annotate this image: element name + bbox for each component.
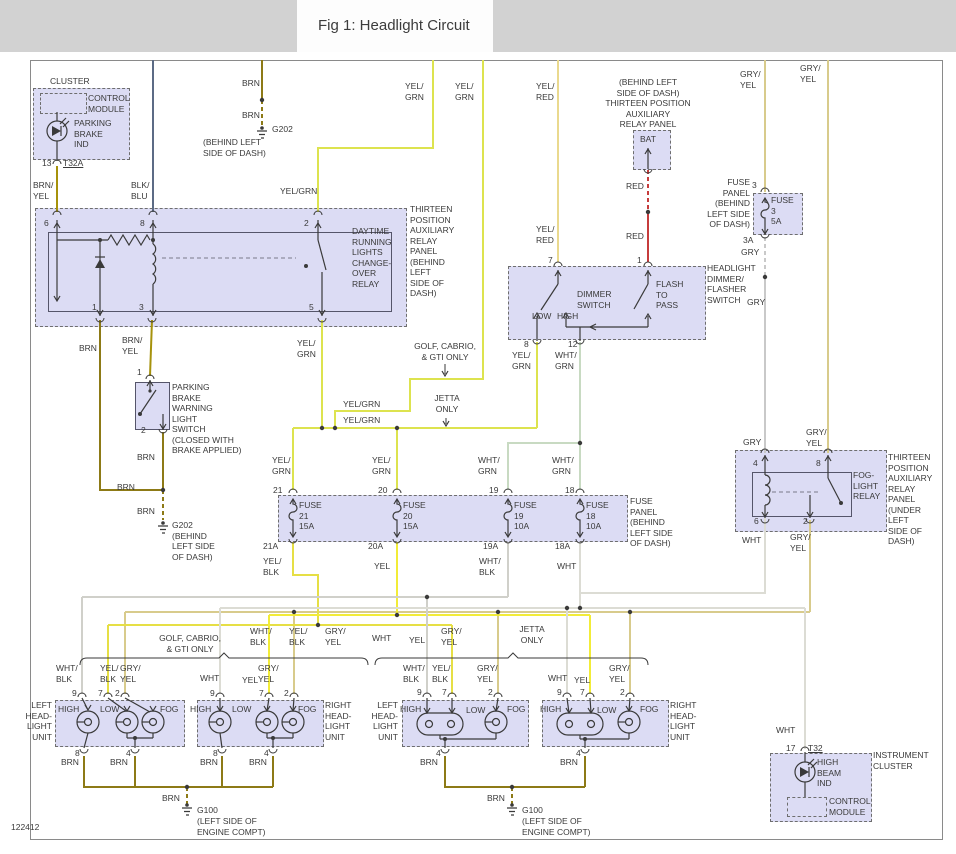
jetta-right-unit-label: RIGHT HEAD- LIGHT UNIT [670, 700, 696, 742]
dimmer-pin-7: 7 [548, 255, 553, 266]
jr-pin-9: 9 [557, 687, 562, 698]
wire-gry-yel-fog8: GRY/ YEL [806, 427, 827, 448]
drl-relay-label: DAYTIME RUNNING LIGHTS CHANGE- OVER RELA… [352, 226, 392, 289]
jetta-right-low: LOW [597, 705, 616, 716]
wire-yel-grn-pin5: YEL/ GRN [297, 338, 316, 359]
wire-wht-row: WHT [372, 633, 391, 644]
jr-pin-2: 2 [620, 687, 625, 698]
ground-g202-bottom: G202 (BEHIND LEFT SIDE OF DASH) [172, 520, 215, 562]
wire-yel-grn-f20: YEL/ GRN [372, 455, 391, 476]
instrument-cluster-internals [795, 752, 817, 797]
wire-brn-drl1: BRN [79, 343, 97, 354]
wire-wht-grn-f18: WHT/ GRN [552, 455, 574, 476]
fuse3-element [761, 198, 769, 234]
wire-yel-gr7: YEL [242, 675, 258, 686]
ground-g100-right: G100 [522, 805, 543, 816]
wire-yel-grn-f21: YEL/ GRN [272, 455, 291, 476]
wire-brn-gl4: BRN [110, 757, 128, 768]
wire-wht-18a: WHT [557, 561, 576, 572]
variant-jetta-note: JETTA ONLY [428, 393, 466, 414]
pin-21a: 21A [263, 541, 278, 552]
dimmer-pin-12: 12 [568, 339, 577, 350]
wire-brn-gr8: BRN [200, 757, 218, 768]
wire-yel-grn-dimmer: YEL/ GRN [512, 350, 531, 371]
jr-pin-7: 7 [580, 687, 585, 698]
golf-right-low: LOW [232, 704, 251, 715]
wire-brn-yel-drl3: BRN/ YEL [122, 335, 142, 356]
pin-19: 19 [489, 485, 498, 496]
ic-pin-17: 17 [786, 743, 795, 754]
brn-wires [84, 60, 585, 804]
wire-yel-blk-21a: YEL/ BLK [263, 556, 281, 577]
wire-brn-pbs: BRN [137, 452, 155, 463]
jetta-right-high: HIGH [540, 704, 561, 715]
wire-red-2: RED [626, 231, 644, 242]
wire-wht-fog6: WHT [742, 535, 761, 546]
terminal-t32a: T32A [63, 158, 83, 169]
bat-panel-label: (BEHIND LEFT SIDE OF DASH) THIRTEEN POSI… [588, 77, 708, 130]
variant-jetta-brace-label: JETTA ONLY [510, 624, 554, 645]
wire-gry-2: GRY [747, 297, 765, 308]
fog-relay-label: FOG- LIGHT RELAY [853, 470, 880, 502]
drl-pin-3: 3 [139, 302, 144, 313]
gr-pin-2: 2 [284, 688, 289, 699]
cluster-title: CLUSTER [50, 76, 90, 87]
jl-pin-2: 2 [488, 687, 493, 698]
terminal-t32: T32 [808, 743, 823, 754]
pbs-pin-1: 1 [137, 367, 142, 378]
fuse-21-label: FUSE 21 15A [299, 500, 322, 532]
wire-blk-blu: BLK/ BLU [131, 180, 149, 201]
pbs-pin-2: 2 [141, 425, 146, 436]
pin-18: 18 [565, 485, 574, 496]
fog-panel-label: THIRTEEN POSITION AUXILIARY RELAY PANEL … [888, 452, 932, 547]
wire-gry-3: GRY [743, 437, 761, 448]
wire-red-1: RED [626, 181, 644, 192]
dimmer-pin-1: 1 [637, 255, 642, 266]
dimmer-low: LOW [532, 311, 551, 322]
golf-right-fog: FOG [298, 704, 316, 715]
pin-20: 20 [378, 485, 387, 496]
instrument-cluster-label: INSTRUMENT CLUSTER [873, 750, 929, 771]
wire-wht-ic: WHT [776, 725, 795, 736]
wire-gry-yel-row1: GRY/ YEL [325, 626, 346, 647]
fog-pin-8: 8 [816, 458, 821, 469]
drl-pin-8: 8 [140, 218, 145, 229]
golf-left-unit-label: LEFT HEAD- LIGHT UNIT [24, 700, 52, 742]
golf-left-fog: FOG [160, 704, 178, 715]
wire-brn-jl4: BRN [420, 757, 438, 768]
ground-g100-left: G100 [197, 805, 218, 816]
fuse-elements [289, 499, 584, 537]
pin-20a: 20A [368, 541, 383, 552]
fog-pin-2: 2 [803, 516, 808, 527]
jetta-right-fog: FOG [640, 704, 658, 715]
dimmer-pin-8: 8 [524, 339, 529, 350]
wire-brn-g202: BRN [137, 506, 155, 517]
golf-left-low: LOW [100, 704, 119, 715]
pin-13: 13 [42, 158, 51, 169]
wire-yel-grn-top2: YEL/ GRN [455, 81, 474, 102]
pin-21: 21 [273, 485, 282, 496]
wire-brn-h: BRN [117, 482, 135, 493]
jetta-left-fog: FOG [507, 704, 525, 715]
drl-pin-2: 2 [304, 218, 309, 229]
fuse-panel-label: FUSE PANEL (BEHIND LEFT SIDE OF DASH) [630, 496, 673, 549]
wire-brn-g100l: BRN [162, 793, 180, 804]
wire-gry-yel-jl2: GRY/ YEL [477, 663, 498, 684]
wire-gry-yel-fog2: GRY/ YEL [790, 532, 811, 553]
high-beam-ind-label: HIGH BEAM IND [817, 757, 841, 789]
wire-brn-gr4: BRN [249, 757, 267, 768]
golf-right-high: HIGH [190, 704, 211, 715]
dimmer-flash-to-pass: FLASH TO PASS [656, 279, 683, 311]
wire-yel-red-top: YEL/ RED [536, 81, 554, 102]
wiring-diagram-page: Fig 1: Headlight Circuit 122412 [0, 0, 956, 854]
cluster-internals [47, 112, 69, 161]
wire-yel-red-mid: YEL/ RED [536, 224, 554, 245]
pin-18a: 18A [555, 541, 570, 552]
ic-control-module-label: CONTROL MODULE [829, 796, 871, 817]
wire-wht-blk-gl9: WHT/ BLK [56, 663, 78, 684]
wire-gry-yel-gl2: GRY/ YEL [120, 663, 141, 684]
wire-brn-top2: BRN [242, 110, 260, 121]
wire-wht-grn-dimmer: WHT/ GRN [555, 350, 577, 371]
wire-gry-yel-gr2: GRY/ YEL [258, 663, 279, 684]
variant-golf-note: GOLF, CABRIO, & GTI ONLY [408, 341, 482, 362]
wire-wht-blk-row: WHT/ BLK [250, 626, 272, 647]
wire-gry-yel-top2: GRY/ YEL [800, 63, 821, 84]
golf-right-unit-label: RIGHT HEAD- LIGHT UNIT [325, 700, 351, 742]
drl-pin-5: 5 [309, 302, 314, 313]
parking-brake-switch-label: PARKING BRAKE WARNING LIGHT SWITCH (CLOS… [172, 382, 241, 456]
wire-yel-20a: YEL [374, 561, 390, 572]
fog-pin-6: 6 [754, 516, 759, 527]
drl-pin-6: 6 [44, 218, 49, 229]
bat-internals [645, 148, 651, 169]
fuse-20-label: FUSE 20 15A [403, 500, 426, 532]
wire-yel-blk-jl7: YEL/ BLK [432, 663, 450, 684]
wire-gry-yel-top1: GRY/ YEL [740, 69, 761, 90]
drl-pin-1: 1 [92, 302, 97, 313]
cluster-control-module-label: CONTROL MODULE [88, 93, 130, 114]
wire-yel-grn-bus1: YEL/GRN [343, 399, 380, 410]
fuse-18-label: FUSE 18 10A [586, 500, 609, 532]
wire-wht-blk-19a: WHT/ BLK [479, 556, 501, 577]
golf-left-high: HIGH [58, 704, 79, 715]
dimmer-label: DIMMER SWITCH [577, 289, 611, 310]
ground-g202-top-loc: (BEHIND LEFT SIDE OF DASH) [203, 137, 266, 158]
wire-yel-grn-top1: YEL/ GRN [405, 81, 424, 102]
wire-wht-blk-jl9: WHT/ BLK [403, 663, 425, 684]
wire-wht-gr9: WHT [200, 673, 219, 684]
ground-g202-top: G202 [272, 124, 293, 135]
gl-pin-7: 7 [98, 688, 103, 699]
ground-g100-left-loc: (LEFT SIDE OF ENGINE COMPT) [197, 816, 265, 837]
variant-golf-brace-label: GOLF, CABRIO, & GTI ONLY [152, 633, 228, 654]
wire-gry-yel-row2: GRY/ YEL [441, 626, 462, 647]
wire-wht-jr9: WHT [548, 673, 567, 684]
wire-yel-blk-row: YEL/ BLK [289, 626, 307, 647]
gr-pin-9: 9 [210, 688, 215, 699]
fuse3-panel-label: FUSE PANEL (BEHIND LEFT SIDE OF DASH) [698, 177, 750, 230]
jl-pin-7: 7 [442, 687, 447, 698]
document-number: 122412 [11, 822, 39, 833]
wire-yel-grn-bus2: YEL/GRN [343, 415, 380, 426]
ground-g100-right-loc: (LEFT SIDE OF ENGINE COMPT) [522, 816, 590, 837]
wire-gry-yel-jr2: GRY/ YEL [609, 663, 630, 684]
drl-panel-label: THIRTEEN POSITION AUXILIARY RELAY PANEL … [410, 204, 454, 299]
pin-19a: 19A [483, 541, 498, 552]
wire-gry-1: GRY [741, 247, 759, 258]
fuse-19-label: FUSE 19 10A [514, 500, 537, 532]
bat-label: BAT [640, 134, 656, 145]
fuse3-pin-3a: 3A [743, 235, 753, 246]
dimmer-high: HIGH [557, 311, 578, 322]
wire-brn-g100r: BRN [487, 793, 505, 804]
jetta-left-low: LOW [466, 705, 485, 716]
fuse3-pin-3: 3 [752, 180, 757, 191]
parking-brake-ind-label: PARKING BRAKE IND [74, 118, 112, 150]
wire-brn-jr4: BRN [560, 757, 578, 768]
fuse3-label: FUSE 3 5A [771, 195, 794, 227]
gr-pin-7: 7 [259, 688, 264, 699]
gl-pin-9: 9 [72, 688, 77, 699]
wire-yel-jr7: YEL [574, 675, 590, 686]
wire-wht-grn-f19: WHT/ GRN [478, 455, 500, 476]
wire-brn-yel-1: BRN/ YEL [33, 180, 53, 201]
wire-yel-blk-gl7: YEL/ BLK [100, 663, 118, 684]
jl-pin-9: 9 [417, 687, 422, 698]
wire-yel-grn-pin2: YEL/GRN [280, 186, 317, 197]
gl-pin-2: 2 [115, 688, 120, 699]
jetta-left-high: HIGH [400, 704, 421, 715]
parking-brake-switch-internals [138, 380, 166, 430]
wire-yel-row: YEL [409, 635, 425, 646]
fog-pin-4: 4 [753, 458, 758, 469]
wire-brn-gl8: BRN [61, 757, 79, 768]
jetta-left-unit-label: LEFT HEAD- LIGHT UNIT [370, 700, 398, 742]
wire-brn-top1: BRN [242, 78, 260, 89]
fog-relay-internals [762, 455, 841, 518]
